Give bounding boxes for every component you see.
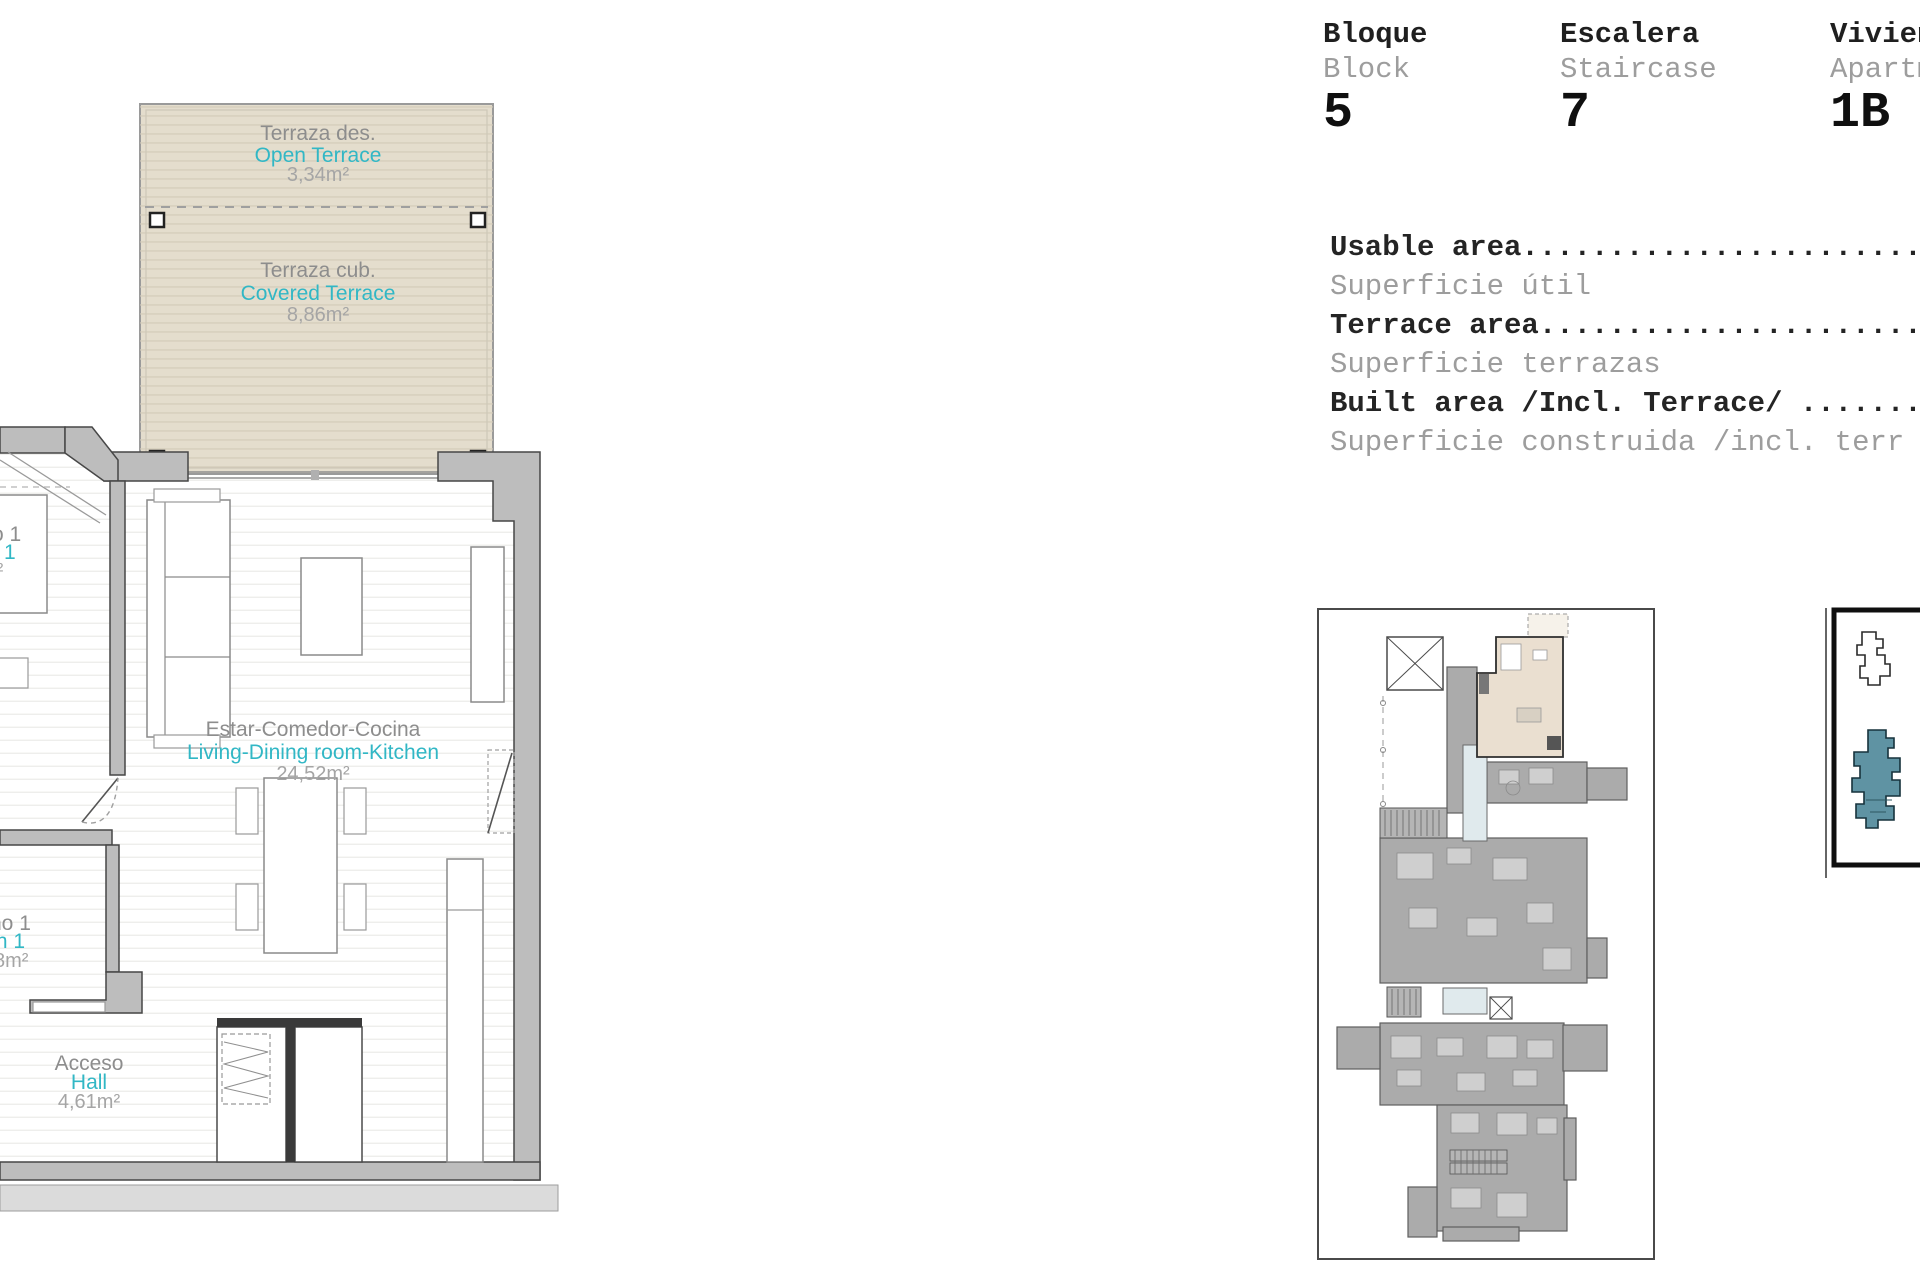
header-staircase-column: Escalera Staircase 7 [1560,20,1717,140]
entry-door-recess [295,1027,362,1162]
terrace-post-icon [471,213,485,227]
wall-bottom [0,1162,540,1180]
key-plan-wing [1337,1027,1380,1069]
open-terrace-label-es: Terraza des. [260,122,376,145]
stairs-icon [1387,987,1421,1017]
covered-terrace-label-es: Terraza cub. [260,259,376,282]
wall-bath-right [106,845,119,972]
key-plan-block [1380,1023,1564,1105]
usable-area-row: Usable area.......................... [1330,228,1920,267]
corridor [1443,988,1487,1014]
terrace-area-row-es: Superficie terrazas [1330,345,1920,384]
unit-terrace-dashed [1528,614,1568,637]
chair [344,884,366,930]
sofa [147,489,230,748]
wall [0,427,65,453]
apartment-label-en: Apartment [1830,55,1920,85]
apartment-label-es: Vivienda [1830,20,1920,50]
elevator-shaft-icon [1490,997,1512,1019]
key-plan-wing [1563,1025,1607,1071]
living-area: 24,52m² [276,763,350,785]
corridor [1463,745,1487,841]
block-value: 5 [1323,88,1427,140]
chair [236,788,258,834]
bath-area-fragment: 8m² [0,950,29,972]
living-label-es: Estar-Comedor-Cocina [206,718,421,741]
staircase-label-en: Staircase [1560,55,1717,85]
location-minimap [1822,600,1920,890]
usable-area-row-es: Superficie útil [1330,267,1920,306]
covered-terrace-label-en: Covered Terrace [241,282,396,305]
bedroom-label-fragment-en: 1 [4,541,16,564]
chair [344,788,366,834]
staircase-value: 7 [1560,88,1717,140]
key-plan-wing [1564,1118,1576,1180]
coffee-table [301,558,362,655]
apartment-value: 1B [1830,88,1920,140]
open-terrace-area: 3,34m² [287,164,350,186]
living-label-en: Living-Dining room-Kitchen [187,741,439,764]
entrance [217,1018,362,1162]
bedroom-area-fragment: m² [0,560,4,582]
header-apartment-column: Vivienda Apartment 1B [1830,20,1920,140]
sideboard [471,547,504,702]
covered-terrace-area: 8,86m² [287,304,350,326]
elevator-shaft-icon [1387,637,1443,690]
key-plan-wing [1408,1187,1437,1237]
terrace-post-icon [150,213,164,227]
block-label-en: Block [1323,55,1427,85]
kitchen-counter [447,859,483,1162]
key-plan-wing [1587,768,1627,800]
dining-table [264,778,337,953]
key-plan [1317,608,1655,1260]
nightstand [0,658,28,688]
bath-sink [33,1002,105,1012]
header-block-column: Bloque Block 5 [1323,20,1427,140]
built-area-row: Built area /Incl. Terrace/ .......... [1330,384,1920,423]
hall-area: 4,61m² [58,1091,121,1113]
area-table: Usable area.......................... Su… [1330,228,1920,462]
wall-bedroom-divider [110,481,125,775]
apartment-floor-plan: Terraza des. Open Terrace 3,34m² Terraza… [0,0,580,1280]
built-area-row-es: Superficie construida /incl. terr [1330,423,1920,462]
staircase-label-es: Escalera [1560,20,1717,50]
key-plan-wing [1443,1227,1519,1241]
key-plan-wing [1587,938,1607,978]
slab-edge [0,1185,558,1211]
stairs-icon [1380,808,1447,838]
terrace-area-row: Terrace area......................... [1330,306,1920,345]
block-label-es: Bloque [1323,20,1427,50]
chair [236,884,258,930]
wall-bath-top [0,830,112,845]
